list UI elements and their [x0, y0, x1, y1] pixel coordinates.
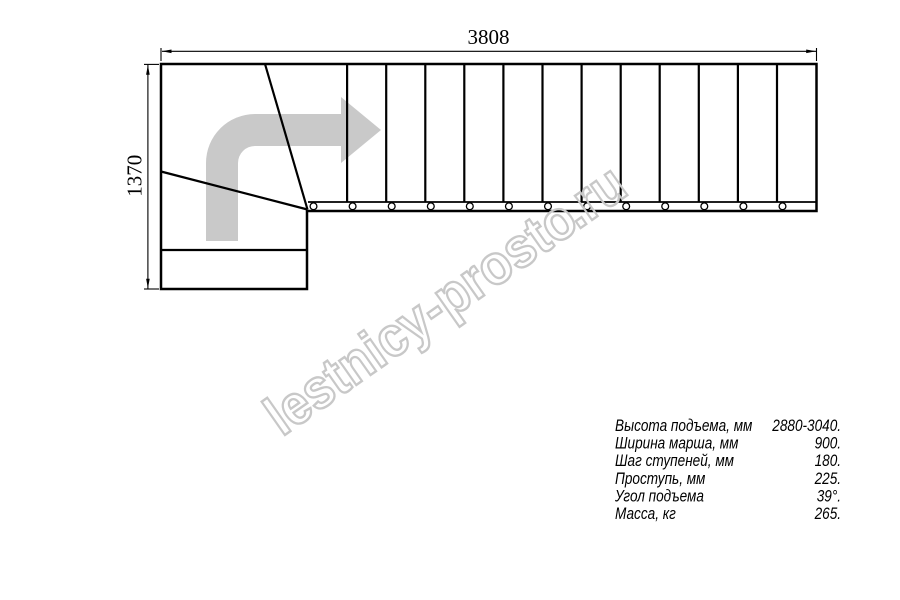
svg-text:900.: 900.	[815, 434, 841, 453]
svg-text:Высота подъема, мм: Высота подъема, мм	[615, 417, 753, 436]
svg-text:225.: 225.	[814, 469, 841, 488]
svg-text:39°.: 39°.	[817, 487, 841, 506]
svg-text:Шаг ступеней, мм: Шаг ступеней, мм	[615, 452, 734, 471]
svg-text:Угол подъема: Угол подъема	[614, 487, 704, 506]
svg-text:1370: 1370	[123, 155, 147, 197]
svg-text:3808: 3808	[468, 25, 510, 49]
svg-text:265.: 265.	[814, 505, 841, 524]
svg-text:2880-3040.: 2880-3040.	[771, 417, 841, 436]
svg-text:Проступь, мм: Проступь, мм	[615, 469, 706, 488]
svg-text:180.: 180.	[815, 452, 841, 471]
svg-text:Ширина марша, мм: Ширина марша, мм	[615, 434, 739, 453]
svg-text:Масса, кг: Масса, кг	[615, 505, 676, 524]
